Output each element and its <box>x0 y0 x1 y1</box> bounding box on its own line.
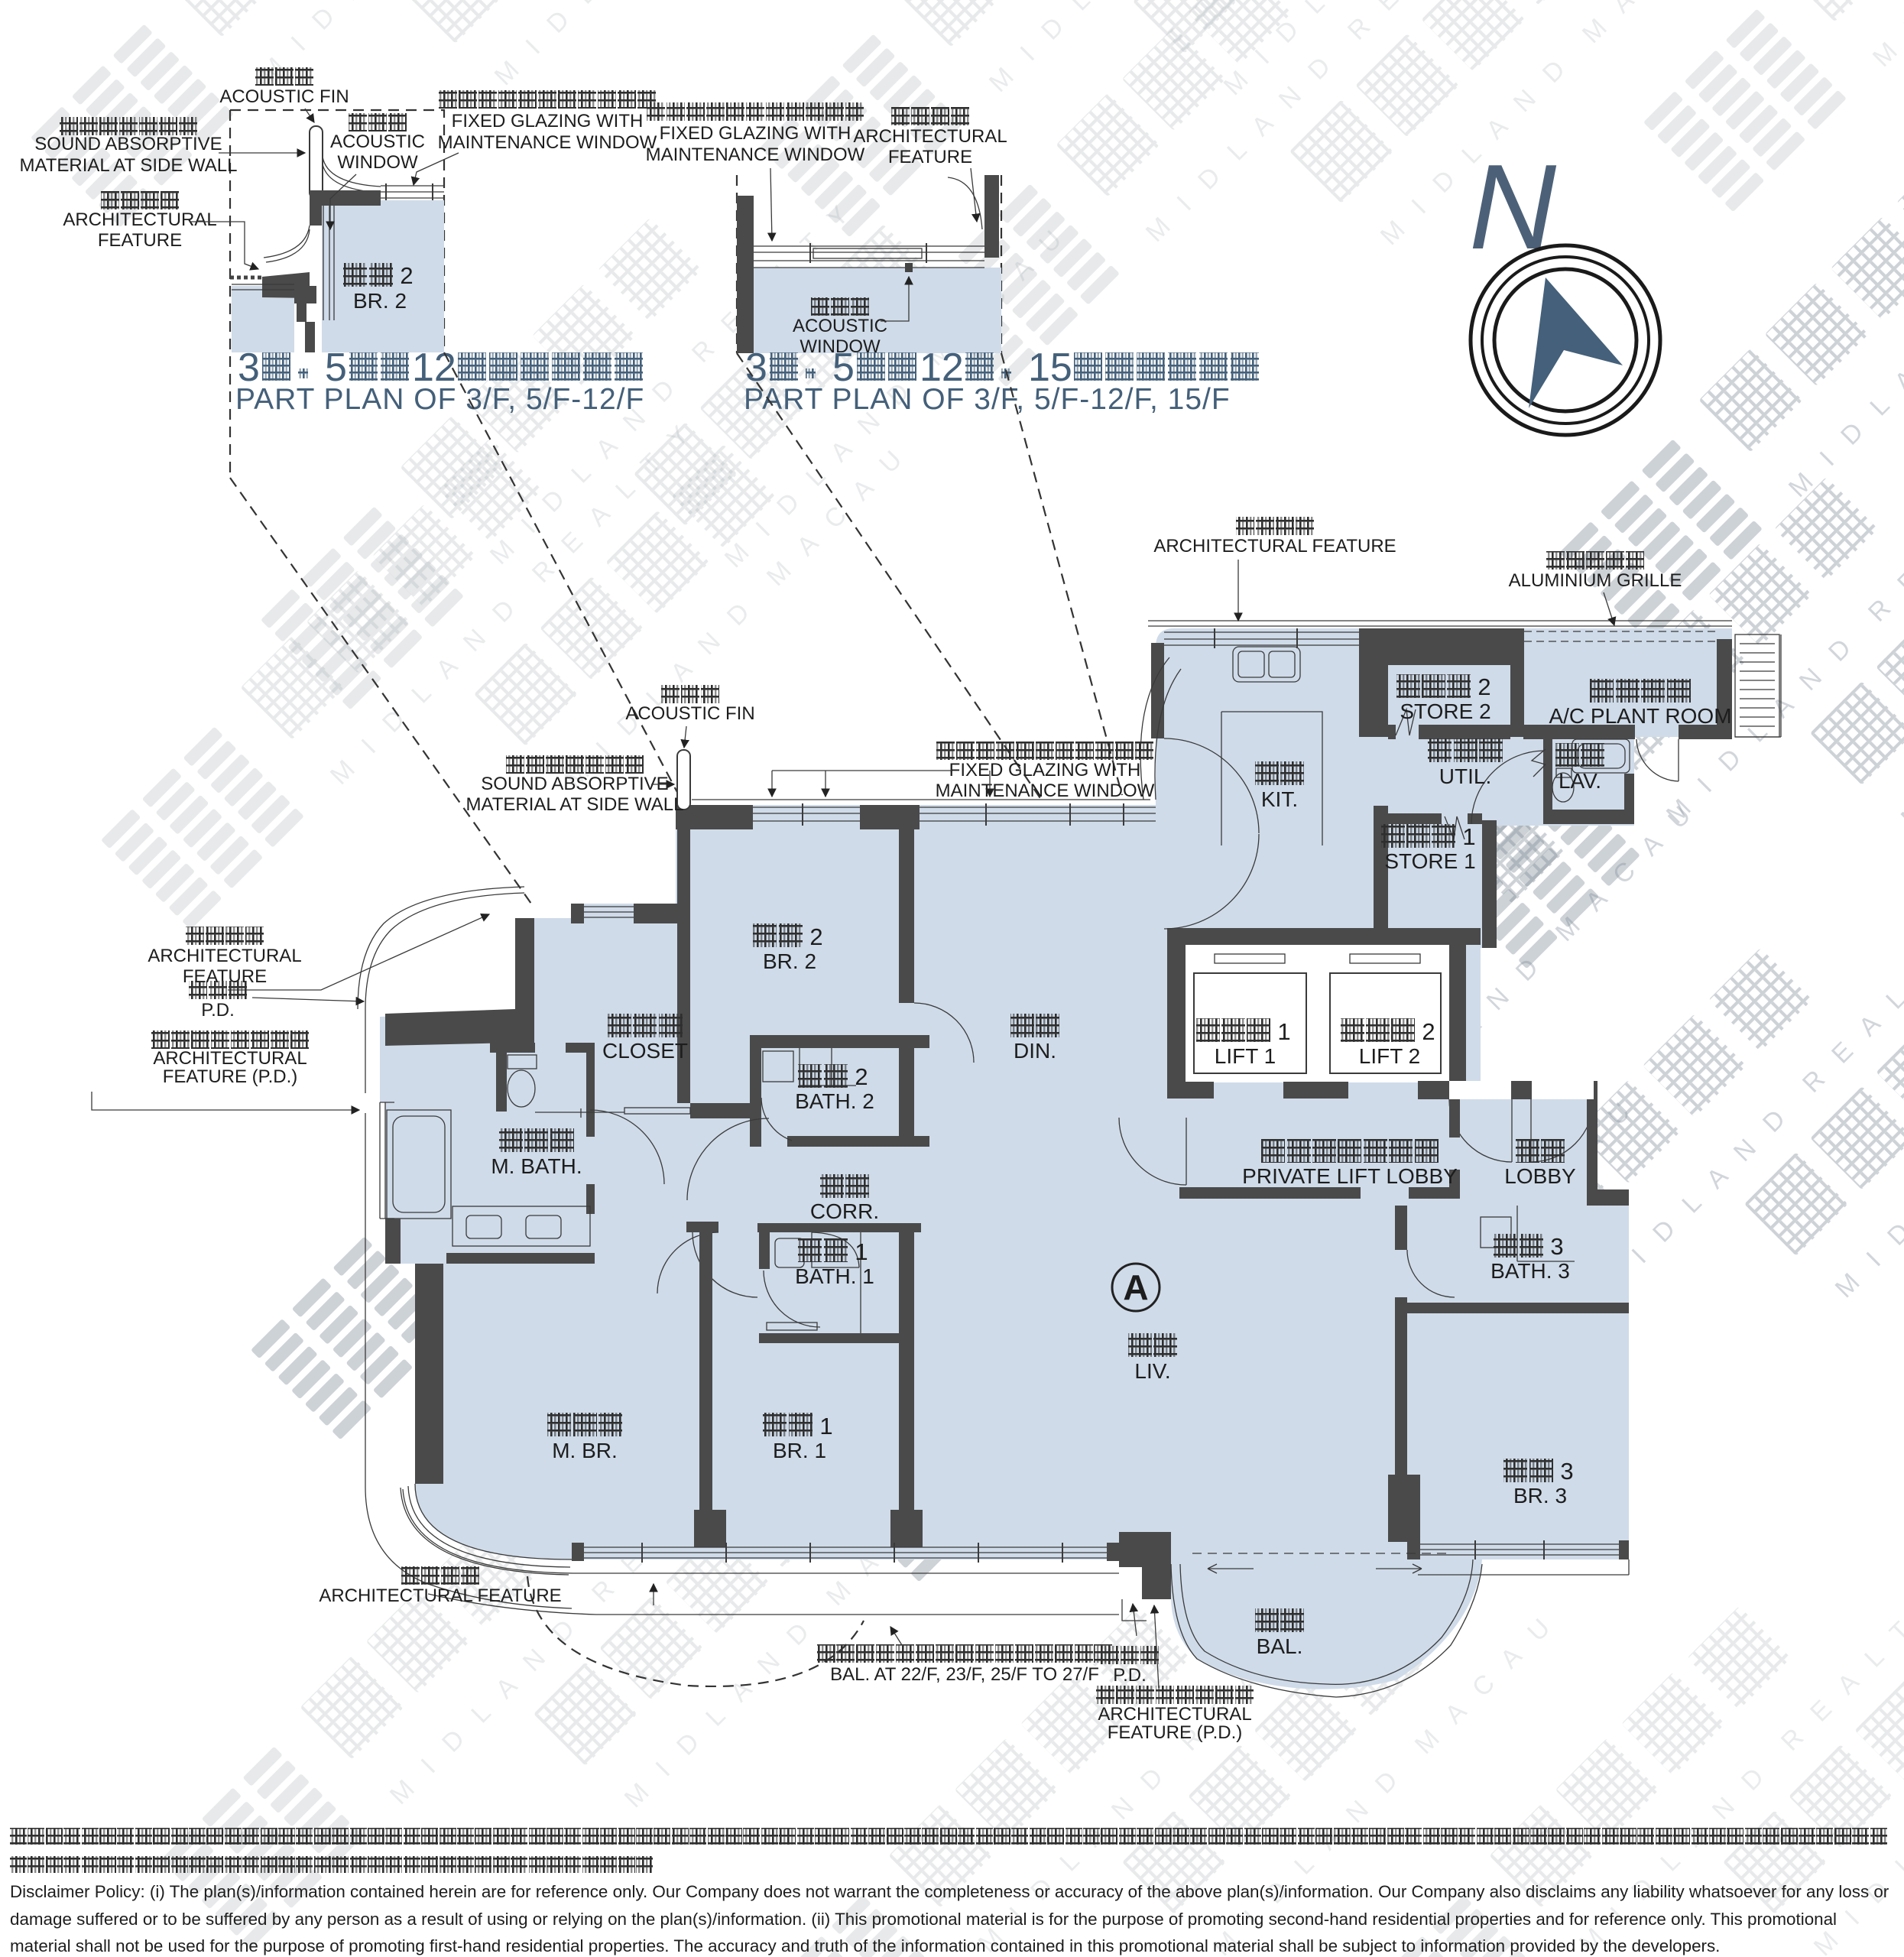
svg-text:FEATURE: FEATURE <box>888 147 972 167</box>
svg-text:BAL.: BAL. <box>1257 1634 1303 1658</box>
svg-text:1: 1 <box>1462 823 1475 850</box>
svg-text:FIXED GLAZING WITH: FIXED GLAZING WITH <box>660 123 851 144</box>
svg-text:CORR.: CORR. <box>810 1199 879 1223</box>
svg-text:M. BATH.: M. BATH. <box>491 1154 582 1178</box>
svg-text:LIV.: LIV. <box>1134 1359 1170 1383</box>
svg-text:FIXED GLAZING WITH: FIXED GLAZING WITH <box>452 111 644 131</box>
svg-text:1: 1 <box>819 1413 832 1439</box>
svg-text:MATERIAL AT SIDE WALL: MATERIAL AT SIDE WALL <box>466 794 684 815</box>
svg-text:2: 2 <box>855 1063 868 1090</box>
svg-text:P.D.: P.D. <box>201 1000 235 1021</box>
svg-text:LAV.: LAV. <box>1559 769 1601 793</box>
svg-text:MAINTENANCE WINDOW: MAINTENANCE WINDOW <box>936 781 1155 801</box>
svg-text:STORE 2: STORE 2 <box>1400 699 1490 723</box>
svg-text:PART PLAN OF 3/F, 5/F-12/F: PART PLAN OF 3/F, 5/F-12/F <box>235 383 644 416</box>
svg-text:2: 2 <box>809 923 822 950</box>
svg-text:PRIVATE LIFT LOBBY: PRIVATE LIFT LOBBY <box>1242 1164 1458 1188</box>
svg-text:WINDOW: WINDOW <box>337 152 418 173</box>
svg-text:ARCHITECTURAL: ARCHITECTURAL <box>853 126 1007 147</box>
svg-text:ACOUSTIC FIN: ACOUSTIC FIN <box>625 703 754 724</box>
svg-text:LIFT 1: LIFT 1 <box>1215 1044 1276 1068</box>
svg-text:BR. 2: BR. 2 <box>353 289 407 313</box>
svg-text:BATH. 1: BATH. 1 <box>795 1264 874 1288</box>
svg-text:Disclaimer Policy: (i) The pla: Disclaimer Policy: (i) The plan(s)/infor… <box>10 1882 1889 1901</box>
svg-text:ACOUSTIC FIN: ACOUSTIC FIN <box>219 86 349 107</box>
svg-text:UTIL.: UTIL. <box>1439 764 1491 788</box>
svg-text:ARCHITECTURAL: ARCHITECTURAL <box>1098 1704 1251 1725</box>
svg-text:ACOUSTIC: ACOUSTIC <box>793 316 887 336</box>
svg-text:2: 2 <box>400 262 413 289</box>
svg-text:ALUMINIUM GRILLE: ALUMINIUM GRILLE <box>1509 570 1682 591</box>
svg-text:LOBBY: LOBBY <box>1504 1164 1576 1188</box>
svg-text:DIN.: DIN. <box>1014 1039 1056 1063</box>
svg-text:ARCHITECTURAL: ARCHITECTURAL <box>63 209 216 230</box>
svg-text:material shall not be used for: material shall not be used for the purpo… <box>10 1936 1720 1955</box>
svg-text:2: 2 <box>1422 1018 1435 1045</box>
svg-text:ARCHITECTURAL FEATURE: ARCHITECTURAL FEATURE <box>319 1585 561 1606</box>
svg-text:BR. 2: BR. 2 <box>763 949 816 973</box>
svg-text:P.D.: P.D. <box>1113 1665 1147 1686</box>
svg-text:2: 2 <box>1477 673 1490 700</box>
svg-text:BAL. AT 22/F, 23/F, 25/F TO 27: BAL. AT 22/F, 23/F, 25/F TO 27/F <box>830 1664 1099 1685</box>
svg-text:A: A <box>1123 1267 1148 1307</box>
svg-text:ARCHITECTURAL: ARCHITECTURAL <box>153 1048 307 1069</box>
svg-text:ACOUSTIC: ACOUSTIC <box>330 131 425 152</box>
svg-text:MAINTENANCE WINDOW: MAINTENANCE WINDOW <box>438 132 657 153</box>
svg-text:SOUND ABSORPTIVE: SOUND ABSORPTIVE <box>481 774 668 794</box>
svg-text:FEATURE (P.D.): FEATURE (P.D.) <box>1108 1722 1242 1743</box>
svg-text:BATH. 3: BATH. 3 <box>1490 1259 1570 1283</box>
svg-text:CLOSET: CLOSET <box>602 1039 688 1063</box>
svg-text:MAINTENANCE WINDOW: MAINTENANCE WINDOW <box>646 144 865 165</box>
svg-text:3: 3 <box>1560 1458 1573 1485</box>
svg-text:LIFT 2: LIFT 2 <box>1359 1044 1420 1068</box>
svg-text:STORE 1: STORE 1 <box>1384 849 1475 873</box>
svg-text:PART PLAN OF 3/F, 5/F-12/F, 15: PART PLAN OF 3/F, 5/F-12/F, 15/F <box>744 383 1231 416</box>
svg-text:FEATURE (P.D.): FEATURE (P.D.) <box>163 1066 297 1087</box>
svg-text:1: 1 <box>1277 1018 1290 1045</box>
svg-text:FEATURE: FEATURE <box>98 230 182 251</box>
svg-text:A/C PLANT ROOM: A/C PLANT ROOM <box>1549 704 1731 728</box>
svg-text:MATERIAL AT SIDE WALL: MATERIAL AT SIDE WALL <box>20 155 238 176</box>
svg-text:KIT.: KIT. <box>1261 787 1298 811</box>
svg-text:BR. 1: BR. 1 <box>773 1439 826 1462</box>
svg-text:N: N <box>1469 140 1557 274</box>
svg-text:FIXED GLAZING WITH: FIXED GLAZING WITH <box>949 760 1141 781</box>
svg-text:ARCHITECTURAL FEATURE: ARCHITECTURAL FEATURE <box>1153 536 1396 557</box>
svg-text:M. BR.: M. BR. <box>552 1439 618 1462</box>
svg-text:SOUND ABSORPTIVE: SOUND ABSORPTIVE <box>34 134 222 154</box>
svg-text:damage suffered or to be suffe: damage suffered or to be suffered by any… <box>10 1910 1837 1929</box>
svg-text:1: 1 <box>855 1238 868 1265</box>
svg-text:BR. 3: BR. 3 <box>1513 1484 1567 1508</box>
svg-text:ARCHITECTURAL: ARCHITECTURAL <box>148 946 301 966</box>
svg-text:3: 3 <box>1550 1233 1563 1260</box>
svg-text:BATH. 2: BATH. 2 <box>795 1089 874 1113</box>
